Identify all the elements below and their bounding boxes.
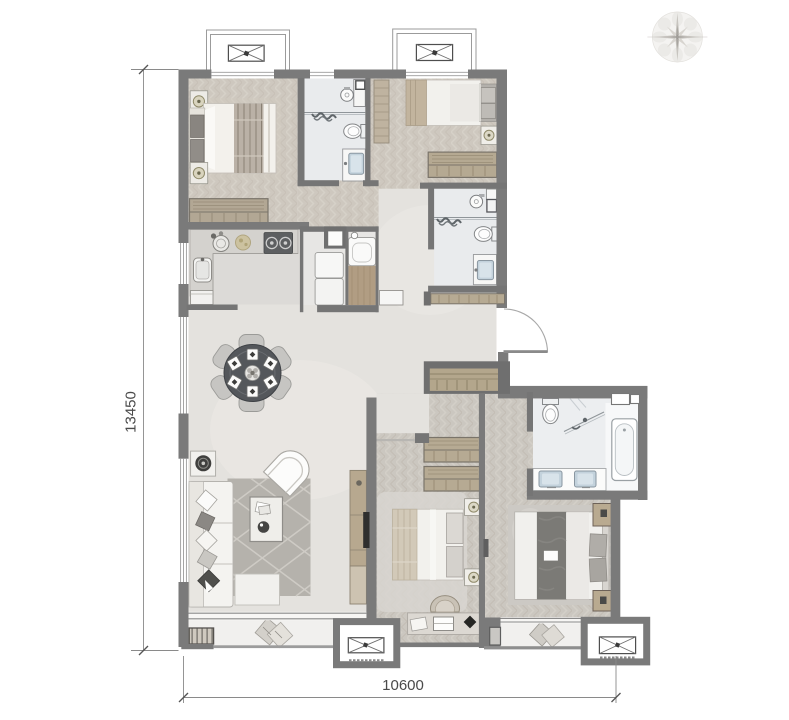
svg-text:13450: 13450 bbox=[123, 391, 140, 433]
svg-text:10600: 10600 bbox=[382, 677, 424, 694]
